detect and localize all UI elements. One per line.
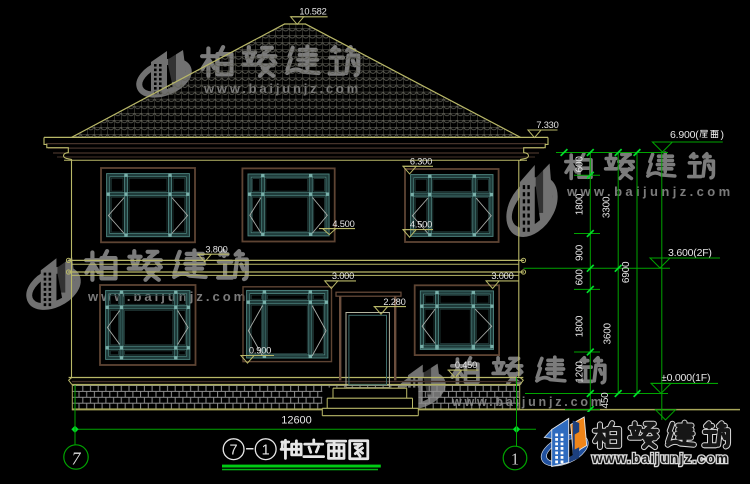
svg-text:4.500: 4.500 xyxy=(332,219,354,229)
svg-text:): ) xyxy=(721,129,725,141)
svg-text:1: 1 xyxy=(511,450,519,469)
svg-text:6.900(: 6.900( xyxy=(670,129,699,141)
svg-text:0.450: 0.450 xyxy=(455,360,477,370)
svg-text:600: 600 xyxy=(575,269,586,286)
svg-text:–: – xyxy=(246,440,254,457)
svg-text:1200: 1200 xyxy=(575,361,586,383)
svg-text:3.000: 3.000 xyxy=(491,271,513,281)
svg-text:3300: 3300 xyxy=(602,196,613,218)
svg-text:3.000: 3.000 xyxy=(332,271,354,281)
svg-text:7: 7 xyxy=(230,443,238,459)
svg-text:6.300: 6.300 xyxy=(410,157,432,167)
svg-text:1800: 1800 xyxy=(575,315,586,337)
svg-text:1: 1 xyxy=(262,443,270,459)
svg-text:www.baijunjz.com: www.baijunjz.com xyxy=(566,184,734,199)
svg-text:600: 600 xyxy=(575,156,586,173)
svg-text:0.900: 0.900 xyxy=(249,346,271,356)
svg-text:7: 7 xyxy=(72,449,82,469)
svg-text:1800: 1800 xyxy=(575,193,586,215)
svg-text:3.800: 3.800 xyxy=(205,244,227,254)
svg-text:3.600(2F): 3.600(2F) xyxy=(668,247,712,259)
svg-text:10.582: 10.582 xyxy=(299,7,326,17)
svg-text:3600: 3600 xyxy=(603,322,614,344)
svg-text:2.280: 2.280 xyxy=(383,297,405,307)
svg-text:12600: 12600 xyxy=(281,415,312,427)
svg-text:±0.000(1F): ±0.000(1F) xyxy=(661,372,710,384)
svg-text:www.baijunjz.com: www.baijunjz.com xyxy=(591,451,729,466)
svg-text:450: 450 xyxy=(600,392,611,409)
svg-text:4.500: 4.500 xyxy=(410,220,432,230)
svg-text:6900: 6900 xyxy=(621,261,632,283)
svg-text:7.330: 7.330 xyxy=(536,120,558,130)
svg-text:900: 900 xyxy=(575,244,586,261)
